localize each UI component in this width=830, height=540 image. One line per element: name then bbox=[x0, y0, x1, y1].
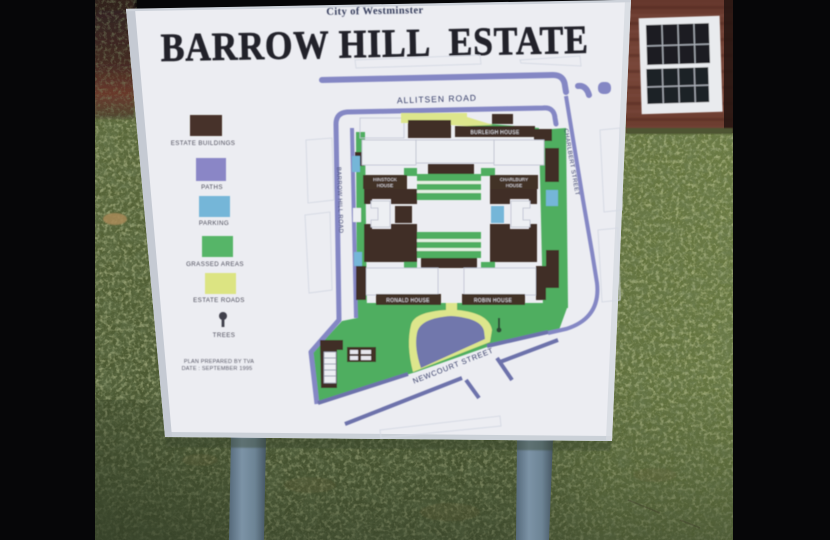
svg-text:HINSTOCK: HINSTOCK bbox=[373, 177, 398, 182]
svg-text:BURLEIGH HOUSE: BURLEIGH HOUSE bbox=[471, 130, 520, 136]
svg-text:ESTATE BUILDINGS: ESTATE BUILDINGS bbox=[171, 140, 236, 147]
svg-text:RONALD HOUSE: RONALD HOUSE bbox=[386, 298, 430, 304]
svg-text:HOUSE: HOUSE bbox=[506, 183, 522, 188]
svg-text:ROBIN HOUSE: ROBIN HOUSE bbox=[474, 298, 513, 304]
svg-text:CHARLBURY: CHARLBURY bbox=[500, 177, 528, 182]
svg-text:ESTATE ROADS: ESTATE ROADS bbox=[193, 297, 245, 304]
svg-text:PLAN PREPARED BY TVA: PLAN PREPARED BY TVA bbox=[184, 359, 254, 365]
svg-text:HOUSE: HOUSE bbox=[377, 183, 393, 188]
svg-text:TREES: TREES bbox=[213, 332, 236, 339]
svg-text:DATE : SEPTEMBER 1995: DATE : SEPTEMBER 1995 bbox=[182, 366, 253, 372]
svg-text:GRASSED AREAS: GRASSED AREAS bbox=[186, 261, 244, 268]
svg-text:PARKING: PARKING bbox=[199, 220, 229, 227]
svg-text:City of Westminster: City of Westminster bbox=[326, 5, 423, 18]
svg-text:BARROW HILL ESTATE: BARROW HILL ESTATE bbox=[160, 17, 589, 70]
svg-text:PATHS: PATHS bbox=[201, 184, 223, 191]
